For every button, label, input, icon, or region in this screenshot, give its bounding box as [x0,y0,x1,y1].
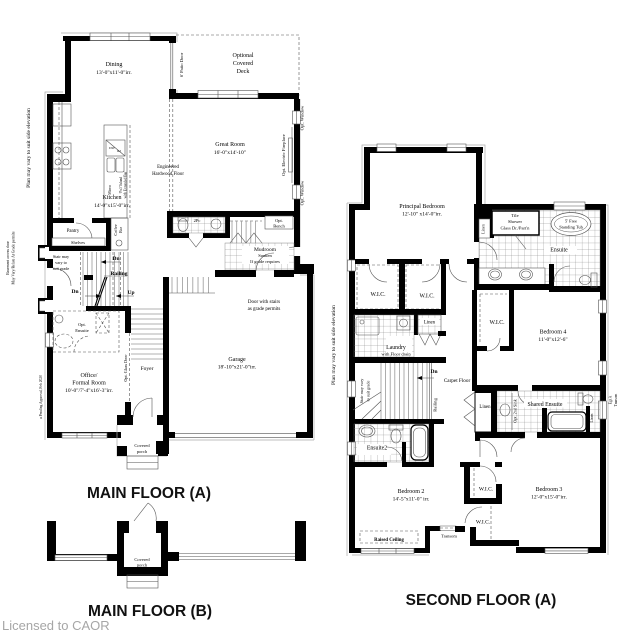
svg-text:W.I.C.: W.I.C. [370,292,386,298]
svg-text:with Extended Bar: with Extended Bar [124,171,128,199]
svg-text:2Pc: 2Pc [194,218,201,223]
svg-text:Bedroom 3: Bedroom 3 [536,487,563,493]
svg-text:Carpet Floor: Carpet Floor [444,378,471,384]
svg-text:Optional: Optional [233,53,254,59]
svg-text:with Floor drain: with Floor drain [381,352,411,357]
svg-text:Transom: Transom [441,534,457,539]
svg-text:If grade requires: If grade requires [250,259,280,264]
svg-text:Tile: Tile [511,213,518,218]
svg-text:13'-0"x11'-0"irr.: 13'-0"x11'-0"irr. [96,70,132,76]
svg-text:SECOND FLOOR (A): SECOND FLOOR (A) [406,592,557,609]
svg-text:Stair may: Stair may [53,254,70,259]
svg-text:Covered: Covered [134,557,150,562]
svg-text:Opt.: Opt. [275,218,283,223]
svg-text:Ensuite2: Ensuite2 [367,446,387,452]
svg-text:porch: porch [137,563,148,568]
svg-text:Bench: Bench [273,224,285,229]
svg-text:Linen: Linen [590,413,594,422]
svg-text:18'-10"x21'-0"irr.: 18'-10"x21'-0"irr. [218,365,257,371]
svg-text:suit grade: suit grade [53,266,70,271]
svg-text:Shelves: Shelves [71,240,85,245]
svg-text:W.I.C.: W.I.C. [419,294,435,300]
svg-text:as grade permits: as grade permits [248,307,281,312]
svg-text:Principal Bedroom: Principal Bedroom [399,204,445,210]
svg-text:Engineered: Engineered [157,165,179,170]
svg-text:Sunken: Sunken [258,253,272,258]
svg-text:Shower: Shower [508,219,523,224]
svg-text:Laundry: Laundry [386,345,406,351]
svg-text:Foyer: Foyer [141,366,154,372]
svg-text:Ensuite: Ensuite [75,328,89,333]
svg-text:Opt. Glass Door: Opt. Glass Door [123,354,128,382]
svg-text:Basement access door: Basement access door [6,241,10,275]
svg-text:11'-0"x12'-6": 11'-0"x12'-6" [538,337,567,343]
svg-text:Plan may vary to suit side ele: Plan may vary to suit side elevation [26,108,32,188]
svg-text:Up: Up [127,290,134,296]
svg-text:MAIN FLOOR (A): MAIN FLOOR (A) [87,485,211,502]
svg-text:Pantry: Pantry [67,229,80,234]
svg-text:porch: porch [137,449,148,454]
svg-text:Opt. Electric Fireplace: Opt. Electric Fireplace [281,134,286,176]
svg-text:Micro: Micro [107,185,112,195]
svg-text:Egr A: Egr A [609,395,613,404]
svg-text:14'-0"x15'-0"irr.: 14'-0"x15'-0"irr. [94,203,130,209]
svg-text:W.I.C.: W.I.C. [479,487,494,493]
svg-text:14'-5"x11'-0" irr.: 14'-5"x11'-0" irr. [393,497,430,503]
svg-text:Railing: Railing [433,398,438,412]
svg-text:Standing Tub: Standing Tub [559,225,583,230]
svg-text:W.I.C.: W.I.C. [489,320,505,326]
svg-text:Covered: Covered [134,443,150,448]
svg-text:Linen: Linen [424,321,436,326]
svg-text:Opt.: Opt. [78,322,86,327]
svg-text:Shared Ensuite: Shared Ensuite [528,402,563,408]
svg-text:May Vary/Relate At Grade permi: May Vary/Relate At Grade permits [12,231,16,284]
svg-text:10'-0"/7'-4"x16'-3"irr.: 10'-0"/7'-4"x16'-3"irr. [65,388,113,394]
svg-text:Licensed to CAOR: Licensed to CAOR [2,618,110,633]
svg-text:16'-0"x14'-10": 16'-0"x14'-10" [214,150,246,156]
svg-text:vary to: vary to [55,260,67,265]
svg-text:Linen: Linen [481,223,486,234]
svg-text:Bar: Bar [118,226,123,233]
svg-text:5' Free: 5' Free [565,219,577,224]
svg-text:DW: DW [109,146,115,150]
svg-text:Dn: Dn [430,369,437,375]
svg-text:Plan may vary to suit side ele: Plan may vary to suit side elevation [331,305,337,385]
svg-text:12'-0"x15'-0"irr.: 12'-0"x15'-0"irr. [531,495,567,501]
svg-text:Great Room: Great Room [215,142,245,148]
svg-text:Ensuite: Ensuite [550,248,568,254]
svg-text:to suit grade: to suit grade [366,381,371,402]
svg-text:Raised Ceiling: Raised Ceiling [374,538,404,543]
svg-text:Garage: Garage [228,357,246,363]
svg-text:Covered: Covered [233,61,253,67]
svg-text:Opt. Window: Opt. Window [300,105,305,130]
svg-text:Door with stairs: Door with stairs [248,300,280,305]
svg-text:Transom: Transom [614,393,618,406]
svg-text:Dining: Dining [106,62,123,68]
svg-text:Bedroom 2: Bedroom 2 [398,489,425,495]
svg-text:Glass Dr./Part'n: Glass Dr./Part'n [501,226,531,231]
svg-text:Linen: Linen [479,405,491,410]
svg-text:6' Patio Door: 6' Patio Door [179,52,184,77]
svg-text:Opt. 2nd Sink: Opt. 2nd Sink [513,398,518,422]
svg-text:Dn: Dn [112,256,119,262]
svg-text:Kitchen: Kitchen [103,195,122,201]
svg-text:W.I.C.: W.I.C. [476,520,491,526]
svg-text:Dn: Dn [71,289,78,295]
svg-text:Formal Room: Formal Room [72,381,106,387]
svg-text:Hardwood Floor: Hardwood Floor [152,172,184,177]
svg-text:Stair may vary: Stair may vary [359,378,364,404]
svg-text:Opt. Window: Opt. Window [300,180,305,205]
svg-text:Deck: Deck [237,69,250,75]
svg-text:Office/: Office/ [81,372,98,379]
svg-text:9'x3' Island: 9'x3' Island [119,177,123,194]
svg-text:Railing: Railing [110,271,127,277]
svg-text:12'-10" x14'-0"irr.: 12'-10" x14'-0"irr. [402,212,442,218]
svg-text:Bedroom 4: Bedroom 4 [540,330,567,336]
